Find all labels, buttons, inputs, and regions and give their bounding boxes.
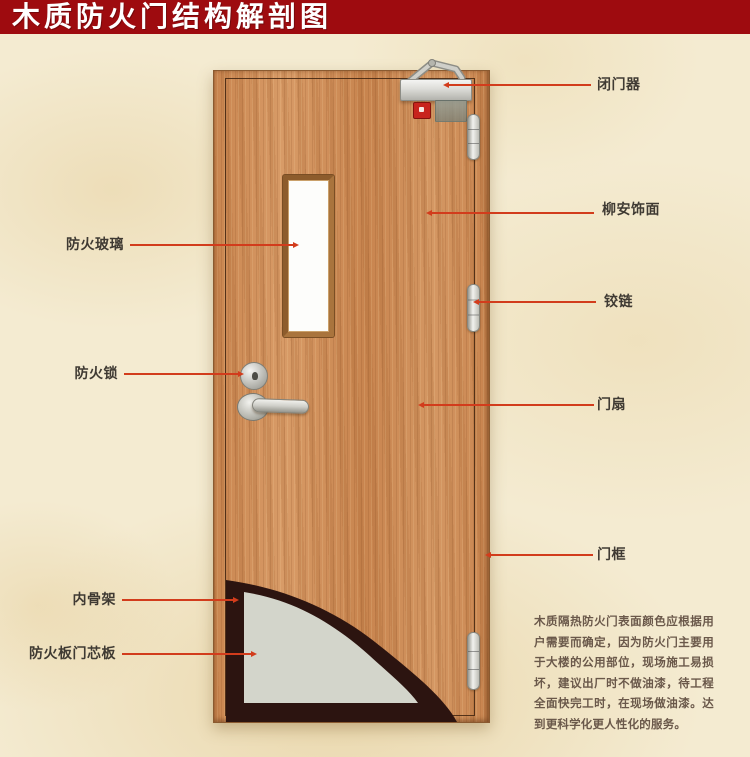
label-door-closer: 闭门器: [597, 77, 641, 92]
label-fire-core-board: 防火板门芯板: [20, 646, 116, 661]
label-lauan-veneer: 柳安饰面: [602, 202, 660, 217]
leader-line-hinge: [475, 301, 596, 303]
leader-line-inner-skeleton: [122, 599, 237, 601]
fire-door-illustration: [213, 70, 490, 723]
label-door-leaf: 门扇: [597, 397, 626, 412]
leader-line-fire-glass: [130, 244, 297, 246]
hinge-middle: [467, 284, 480, 332]
cutaway-section: [214, 576, 491, 724]
leader-line-door-leaf: [420, 404, 594, 406]
product-description: 木质隔热防火门表面颜色应根据用户需要而确定，因为防火门主要用于大楼的公用部位，现…: [534, 612, 714, 735]
leader-line-fire-lock: [124, 373, 242, 375]
label-door-frame: 门框: [597, 547, 626, 562]
label-hinge: 铰链: [604, 294, 633, 309]
label-fire-glass: 防火玻璃: [40, 237, 124, 252]
title-banner: 木质防火门结构解剖图: [0, 0, 750, 34]
door-handle-lever: [252, 398, 309, 414]
label-inner-skeleton: 内骨架: [40, 592, 116, 607]
page-title: 木质防火门结构解剖图: [12, 0, 332, 34]
label-fire-lock: 防火锁: [40, 366, 118, 381]
leader-line-door-closer: [445, 84, 591, 86]
hinge-top: [467, 114, 480, 160]
leader-line-lauan-veneer: [428, 212, 594, 214]
door-closer-body: [400, 79, 472, 101]
leader-line-fire-core-board: [122, 653, 255, 655]
label-plate: [435, 100, 467, 122]
fire-glass-window: [283, 175, 334, 337]
leader-line-door-frame: [487, 554, 593, 556]
alarm-indicator: [413, 102, 431, 119]
fire-core-board-shape: [244, 592, 418, 703]
